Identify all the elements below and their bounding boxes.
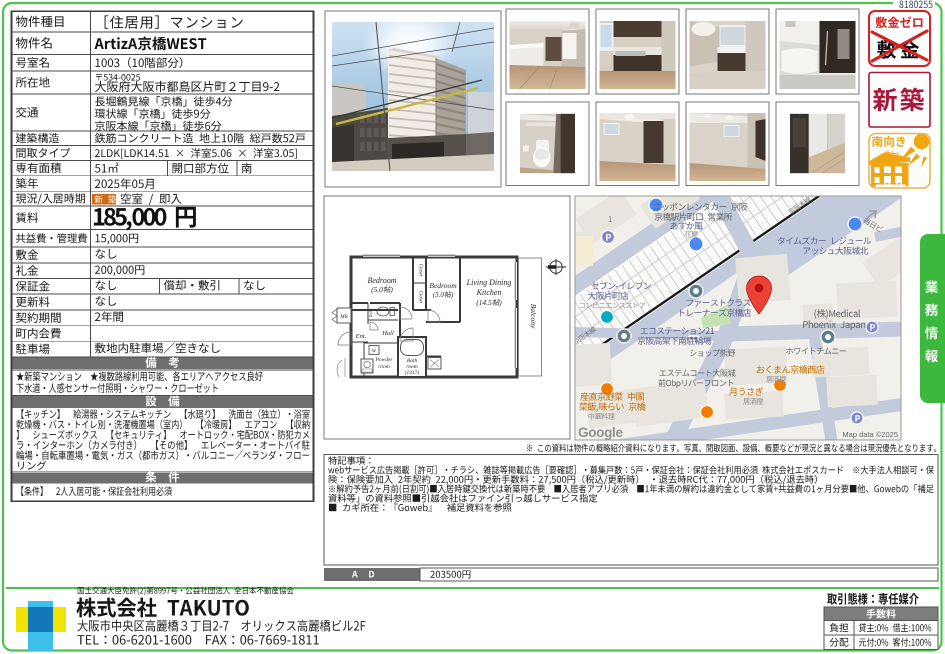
svg-text:Ent.: Ent. <box>355 333 367 340</box>
svg-text:Closet: Closet <box>418 264 423 277</box>
svg-text:Living Dining: Living Dining <box>466 278 512 287</box>
svg-text:Map data ©2025: Map data ©2025 <box>842 430 898 439</box>
svg-text:room: room <box>378 364 389 370</box>
svg-text:MB: MB <box>339 315 347 320</box>
svg-text:(1317): (1317) <box>405 369 420 376</box>
svg-text:Bedroom: Bedroom <box>367 276 396 285</box>
svg-text:(3.0帖): (3.0帖) <box>433 291 454 299</box>
svg-text:(14.5帖): (14.5帖) <box>476 298 502 307</box>
svg-text:Hall: Hall <box>381 330 394 337</box>
svg-text:Closet: Closet <box>418 291 423 304</box>
svg-text:Balcony: Balcony <box>529 304 538 329</box>
svg-text:Toilet: Toilet <box>368 308 373 318</box>
svg-text:Google: Google <box>578 425 623 440</box>
svg-text:(5.0帖): (5.0帖) <box>371 285 393 294</box>
svg-text:Kitchen: Kitchen <box>476 288 502 297</box>
svg-text:Bedroom: Bedroom <box>429 281 457 290</box>
svg-text:Powder: Powder <box>374 357 393 363</box>
